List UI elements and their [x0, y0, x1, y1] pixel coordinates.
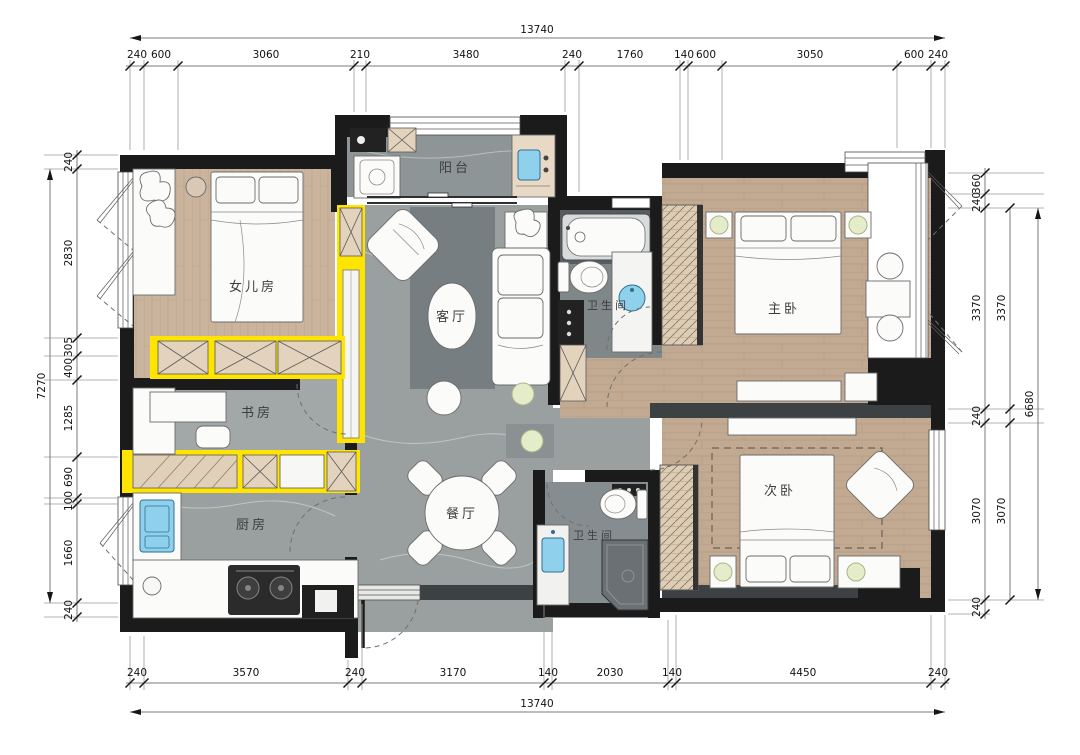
- floor-lamp-icon: [512, 383, 534, 405]
- dim-bottom-seg-0: 240: [127, 667, 147, 679]
- side-table: [186, 177, 206, 197]
- dim-top-seg-4: 3480: [453, 49, 480, 61]
- dim-left-seg-7: 1660: [63, 540, 75, 567]
- second-bedroom-window: [929, 430, 945, 530]
- lamp-icon: [714, 563, 732, 581]
- master-dresser: [845, 373, 877, 401]
- room-label-second: 次卧: [764, 483, 796, 499]
- dim-top-seg-6: 1760: [617, 49, 644, 61]
- plant-icon: [521, 430, 543, 452]
- dim-right-inner-5: 240: [971, 597, 983, 617]
- dim-bottom-seg-1: 3570: [233, 667, 260, 679]
- floor-plan-canvas: 女儿房 书房 厨房 阳台 客厅 餐厅 卫生间 主卧 卫生间 次卧 240 600…: [0, 0, 1080, 755]
- dim-left-overall: 7270: [36, 373, 48, 400]
- dim-bottom-seg-2: 240: [345, 667, 365, 679]
- dim-right-overall: 6680: [1024, 391, 1036, 418]
- room-label-study: 书房: [241, 405, 273, 421]
- pillow: [216, 177, 255, 203]
- bathroom1-window: [612, 198, 650, 208]
- second-wardrobe: [660, 465, 698, 590]
- lamp-icon: [849, 216, 867, 234]
- room-label-bath1: 卫生间: [587, 298, 629, 312]
- study-chair: [196, 426, 230, 448]
- stool: [877, 315, 903, 341]
- dim-top-seg-0: 240: [127, 49, 147, 61]
- dim-left-seg-6: 100: [63, 491, 75, 511]
- room-label-kitchen: 厨房: [236, 517, 268, 533]
- pillow: [790, 556, 830, 582]
- dim-right-inner-0: 360: [971, 174, 983, 194]
- toilet: [600, 489, 647, 519]
- dim-right-inner-2: 3370: [971, 295, 983, 322]
- dim-bottom-seg-5: 2030: [597, 667, 624, 679]
- dim-left-seg-8: 240: [63, 600, 75, 620]
- dim-left-seg-3: 400: [63, 358, 75, 378]
- dim-top-seg-9: 3050: [797, 49, 824, 61]
- dim-right-mid-1: 3070: [996, 498, 1008, 525]
- room-label-dining: 餐厅: [446, 506, 478, 522]
- sofa-cushion: [498, 298, 543, 338]
- dim-right-inner-3: 240: [971, 406, 983, 426]
- dim-top-overall: 13740: [520, 24, 553, 36]
- room-label-bath2: 卫生间: [573, 528, 615, 542]
- dim-right-inner-1: 240: [971, 192, 983, 212]
- dim-bottom-overall: 13740: [520, 698, 553, 710]
- dim-left: 240 2830 305 400 1285 690 100 1660 240 7…: [36, 150, 118, 622]
- dim-bottom-seg-3: 3170: [440, 667, 467, 679]
- lamp-icon: [710, 216, 728, 234]
- study-desk: [150, 392, 226, 422]
- dim-bottom-seg-6: 140: [662, 667, 682, 679]
- dim-top-seg-7: 140: [674, 49, 694, 61]
- entry-threshold: [358, 585, 420, 600]
- dim-bottom-seg-4: 140: [538, 667, 558, 679]
- dim-top-seg-1: 600: [151, 49, 171, 61]
- daughter-window: [118, 172, 133, 328]
- pouf: [427, 381, 461, 415]
- pillow: [791, 216, 836, 241]
- dim-top-seg-10: 600: [904, 49, 924, 61]
- pillow: [746, 556, 786, 582]
- room-label-balcony: 阳台: [439, 161, 471, 176]
- dim-right: 360 240 3370 240 3070 240 3370 3070 6680: [948, 168, 1044, 619]
- dim-left-seg-0: 240: [63, 152, 75, 172]
- oven-door: [315, 590, 337, 612]
- dim-top-seg-2: 3060: [253, 49, 280, 61]
- dim-bottom-seg-8: 240: [928, 667, 948, 679]
- bathroom2-sink: [542, 538, 564, 572]
- dim-top-seg-8: 600: [696, 49, 716, 61]
- dim-right-inner-4: 3070: [971, 498, 983, 525]
- lamp-icon: [847, 563, 865, 581]
- master-wardrobe: [662, 205, 702, 345]
- dim-top-seg-3: 210: [350, 49, 370, 61]
- toilet: [558, 261, 608, 293]
- dim-left-seg-5: 690: [63, 467, 75, 487]
- pillow: [741, 216, 786, 241]
- pot: [143, 577, 161, 595]
- room-label-living: 客厅: [436, 309, 468, 325]
- stool: [877, 253, 903, 279]
- room-label-master: 主卧: [768, 302, 800, 317]
- shower: [602, 540, 648, 610]
- dim-left-seg-1: 2830: [63, 240, 75, 267]
- room-label-daughter: 女儿房: [229, 279, 277, 295]
- pillow: [259, 177, 298, 203]
- master-desk: [866, 281, 910, 317]
- dim-bottom-seg-7: 4450: [790, 667, 817, 679]
- dim-left-seg-4: 1285: [63, 405, 75, 432]
- dim-right-mid-0: 3370: [996, 295, 1008, 322]
- sofa-cushion: [498, 255, 543, 295]
- dim-top-seg-5: 240: [562, 49, 582, 61]
- balcony-cabinet: [350, 128, 386, 152]
- laundry-sink: [518, 150, 540, 180]
- second-tv-console: [728, 418, 856, 435]
- dim-left-seg-2: 305: [63, 337, 75, 357]
- washing-machine: [354, 156, 400, 198]
- floor-plan-page: 女儿房 书房 厨房 阳台 客厅 餐厅 卫生间 主卧 卫生间 次卧 240 600…: [0, 0, 1080, 755]
- master-tv-console: [737, 381, 841, 401]
- dim-top-seg-11: 240: [928, 49, 948, 61]
